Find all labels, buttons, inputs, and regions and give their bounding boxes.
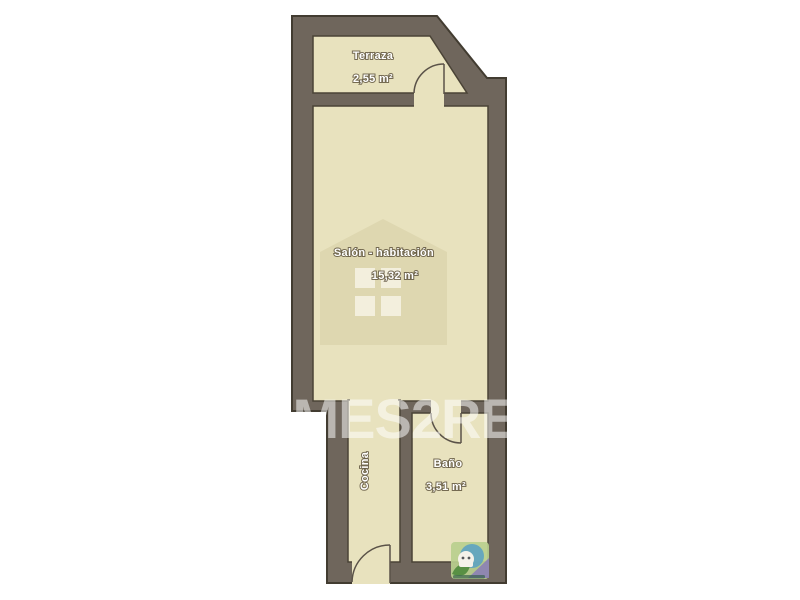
terraza-label: Terraza <box>353 50 394 62</box>
agency-logo <box>451 542 489 579</box>
terraza-door-opening <box>414 92 444 108</box>
floorplan-canvas: Terraza 2,55 m² Salón - habitación 15,32… <box>0 0 800 600</box>
bano-label: Baño <box>434 458 463 470</box>
salon-area: 15,32 m² <box>372 270 418 282</box>
bano-area: 3,51 m² <box>426 481 466 493</box>
floorplan-drawing: Terraza 2,55 m² Salón - habitación 15,32… <box>0 0 800 600</box>
logo-house-icon <box>458 551 474 567</box>
salon-label: Salón - habitación <box>334 247 434 259</box>
terraza-area: 2,55 m² <box>353 73 393 85</box>
cocina-label: Cocina <box>359 451 371 490</box>
watermark-text: HOMES2RENT <box>211 387 591 450</box>
